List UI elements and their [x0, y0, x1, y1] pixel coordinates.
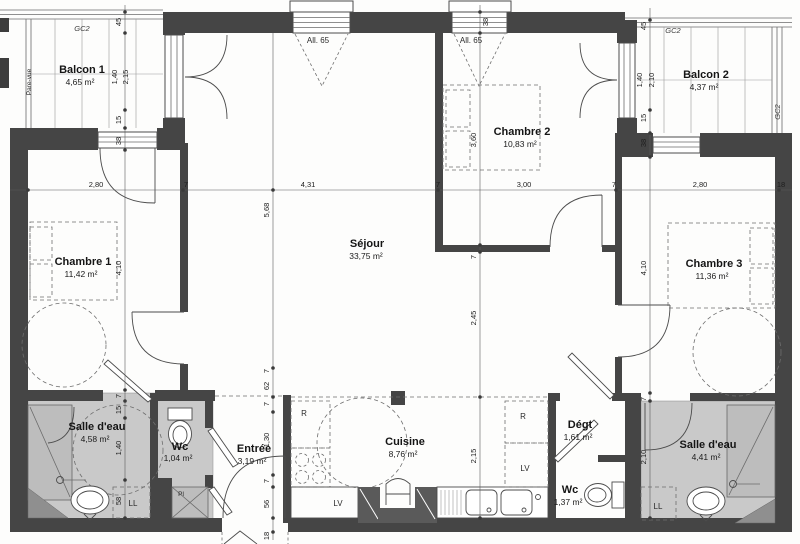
fridge-label: R	[520, 412, 526, 421]
unit-dark	[378, 508, 417, 523]
dim-label: 58	[114, 497, 123, 505]
toilet2-bowl	[585, 484, 612, 507]
dim-label: 45	[114, 18, 123, 26]
dim-label: 38	[639, 139, 648, 147]
room-label-chambre3: Chambre 3	[686, 258, 743, 270]
chair	[386, 479, 410, 506]
dim-label: 2,45	[469, 311, 478, 326]
chambre3-door	[618, 305, 670, 357]
dim-label: 7	[639, 397, 648, 401]
room-area-chambre1: 11,42 m²	[65, 269, 98, 279]
wall-wc1-left	[150, 393, 158, 483]
chambre1-door	[132, 312, 184, 364]
dim-label: 15	[114, 116, 123, 124]
room-label-chambre1: Chambre 1	[55, 256, 112, 268]
floor-plan-drawing: 2,80 7 4,31 7 3,00 7 2,80 18 45 1,40 2,1…	[0, 0, 800, 544]
burner	[313, 471, 326, 484]
dim-label: 5,68	[262, 203, 271, 218]
dim-label: 7	[612, 180, 616, 189]
pillow	[30, 227, 52, 260]
wall-chambre3-left	[615, 133, 622, 305]
edge-mark	[0, 18, 9, 32]
wall-block-right-top	[690, 393, 775, 401]
dim-label: 7	[262, 479, 271, 483]
pillow	[30, 264, 52, 297]
dim-label: 18	[777, 180, 785, 189]
wall-wc1-right-stub	[205, 475, 213, 488]
room-area-chambre2: 10,83 m²	[503, 139, 537, 149]
turning-circle-chambre3	[693, 308, 781, 396]
room-area-sejour: 33,75 m²	[349, 251, 383, 261]
window-box-sejour	[290, 1, 353, 12]
chambre2-door	[550, 195, 602, 247]
wall-wc1-right	[205, 393, 213, 428]
wall-block-right-top	[612, 393, 641, 401]
dim-label: 2,10	[647, 73, 656, 88]
open-boundary-kitchen	[215, 396, 548, 397]
dim-label: 7	[469, 255, 478, 259]
dim-label: 1,40	[114, 441, 123, 456]
turning-circle-chambre1	[22, 303, 106, 387]
room-label-sejour: Séjour	[350, 238, 385, 250]
wall-top	[350, 12, 452, 33]
wall-balcony1-door-jamb	[163, 12, 185, 35]
chambre1-balcony-door-swing	[100, 148, 155, 203]
dim-label: 7	[184, 180, 188, 189]
dim-label: 38	[481, 18, 490, 26]
closet-label: Pl	[178, 491, 184, 498]
balcony2-door-frame	[619, 43, 635, 118]
balcony2-door-swing	[580, 43, 617, 118]
gc2-label: GC2	[665, 26, 681, 35]
window-sill-label: All. 65	[460, 36, 483, 45]
wall-right-outer	[775, 133, 792, 532]
wall-chambre1-right	[180, 143, 188, 312]
window-chambre3	[653, 137, 700, 153]
wall-bath1-top	[10, 390, 103, 401]
dim-label: 4,10	[639, 261, 648, 276]
gc2-label: GC2	[74, 24, 90, 33]
dim-label: 15	[639, 114, 648, 122]
wall-top	[507, 12, 625, 33]
balcony1-door-frame	[165, 35, 183, 118]
room-label-balcon1: Balcon 1	[59, 64, 105, 76]
burner	[296, 471, 309, 484]
fridge-box	[291, 401, 330, 448]
room-label-salle-eau2: Salle d'eau	[679, 439, 736, 451]
room-area-salle-eau2: 4,41 m²	[692, 452, 721, 462]
dim-label: 2,15	[121, 70, 130, 85]
dim-label: 1,40	[635, 73, 644, 88]
dim-label: 15	[114, 406, 123, 414]
room-area-cuisine: 8,76 m²	[389, 449, 418, 459]
room-label-degt: Dégt	[568, 419, 593, 431]
dim-label: 56	[262, 500, 271, 508]
wall-wc1-lower	[150, 478, 172, 523]
gc2-label: GC2	[773, 103, 782, 119]
wall-bottom	[10, 518, 222, 532]
wall-kitchen-left	[283, 395, 291, 523]
room-label-wc2: Wc	[562, 484, 579, 496]
sink-counter	[437, 487, 548, 518]
floor-plan-page: 2,80 7 4,31 7 3,00 7 2,80 18 45 1,40 2,1…	[0, 0, 800, 544]
pillar-stub	[391, 391, 405, 405]
dim-label: 62	[262, 382, 271, 390]
pillow	[446, 90, 470, 127]
wall-left-outer	[10, 128, 28, 532]
chambre1-balcony-door-frame	[98, 132, 157, 148]
dim-label: 2,15	[469, 449, 478, 464]
dishwasher-label: LV	[333, 499, 343, 508]
window-sill-label: All. 65	[307, 36, 330, 45]
wall-balcony2-door-jamb	[617, 118, 637, 133]
burner	[296, 454, 309, 467]
dim-label: 2,80	[693, 180, 708, 189]
room-label-entree: Entrée	[237, 443, 271, 455]
room-area-entree: 3,19 m²	[238, 456, 267, 466]
room-label-chambre2: Chambre 2	[494, 126, 551, 138]
fridge-label: R	[301, 409, 307, 418]
kitchen-fittings	[291, 401, 548, 523]
toilet2-tank	[612, 482, 624, 508]
wall-under-balcony2	[700, 133, 775, 157]
room-area-balcon1: 4,65 m²	[66, 77, 95, 87]
dim-label: 3,00	[517, 180, 532, 189]
dim-label: 7	[262, 402, 271, 406]
pare-vue-label: Pare-vue	[26, 68, 33, 95]
dim-label: 38	[114, 137, 123, 145]
balcony1-top-railing	[0, 10, 163, 19]
room-label-salle-eau1: Salle d'eau	[68, 421, 125, 433]
entrance-door-leaf	[224, 531, 257, 544]
room-label-wc1: Wc	[172, 441, 189, 453]
toilet1-tank	[168, 408, 192, 420]
dim-label: 45	[639, 22, 648, 30]
dim-label: 7	[436, 180, 440, 189]
dim-label: 4,31	[301, 180, 316, 189]
room-area-chambre3: 11,36 m²	[696, 271, 729, 281]
dim-label: 4,10	[114, 261, 123, 276]
wall-block-right-top	[548, 393, 560, 401]
wall-degt-wc2-stub	[598, 455, 625, 462]
wall-chambre2-left	[435, 33, 443, 252]
dim-label: 7	[262, 369, 271, 373]
room-area-salle-eau1: 4,58 m²	[81, 434, 110, 444]
room-area-wc2: 1,37 m²	[554, 497, 583, 507]
pillow	[750, 268, 773, 304]
washer-label: LL	[129, 499, 138, 508]
wall-chambre2-bottom	[435, 245, 550, 252]
degt-door-leaf	[568, 353, 614, 399]
room-label-balcon2: Balcon 2	[683, 69, 729, 81]
dim-label: 3,60	[469, 133, 478, 148]
balcony1-door-swing	[185, 35, 227, 119]
fridge2-box	[505, 401, 548, 443]
room-label-cuisine: Cuisine	[385, 436, 425, 448]
dim-label: 18	[262, 532, 271, 540]
edge-mark	[0, 58, 9, 88]
counter-left	[291, 487, 358, 518]
washer-label: LL	[654, 502, 663, 511]
dim-label: 2,80	[89, 180, 104, 189]
pillow	[446, 131, 470, 167]
dim-label: 2,10	[639, 450, 648, 465]
room-area-balcon2: 4,37 m²	[690, 82, 719, 92]
room-area-wc1: 1,04 m²	[164, 453, 193, 463]
wall-balcony2-door-jamb	[617, 20, 637, 43]
pillow	[750, 228, 773, 264]
dim-label: 7	[114, 394, 123, 398]
dim-label: 1,40	[110, 70, 119, 85]
dishwasher-label: LV	[520, 464, 530, 473]
room-area-degt: 1,61 m²	[564, 432, 593, 442]
